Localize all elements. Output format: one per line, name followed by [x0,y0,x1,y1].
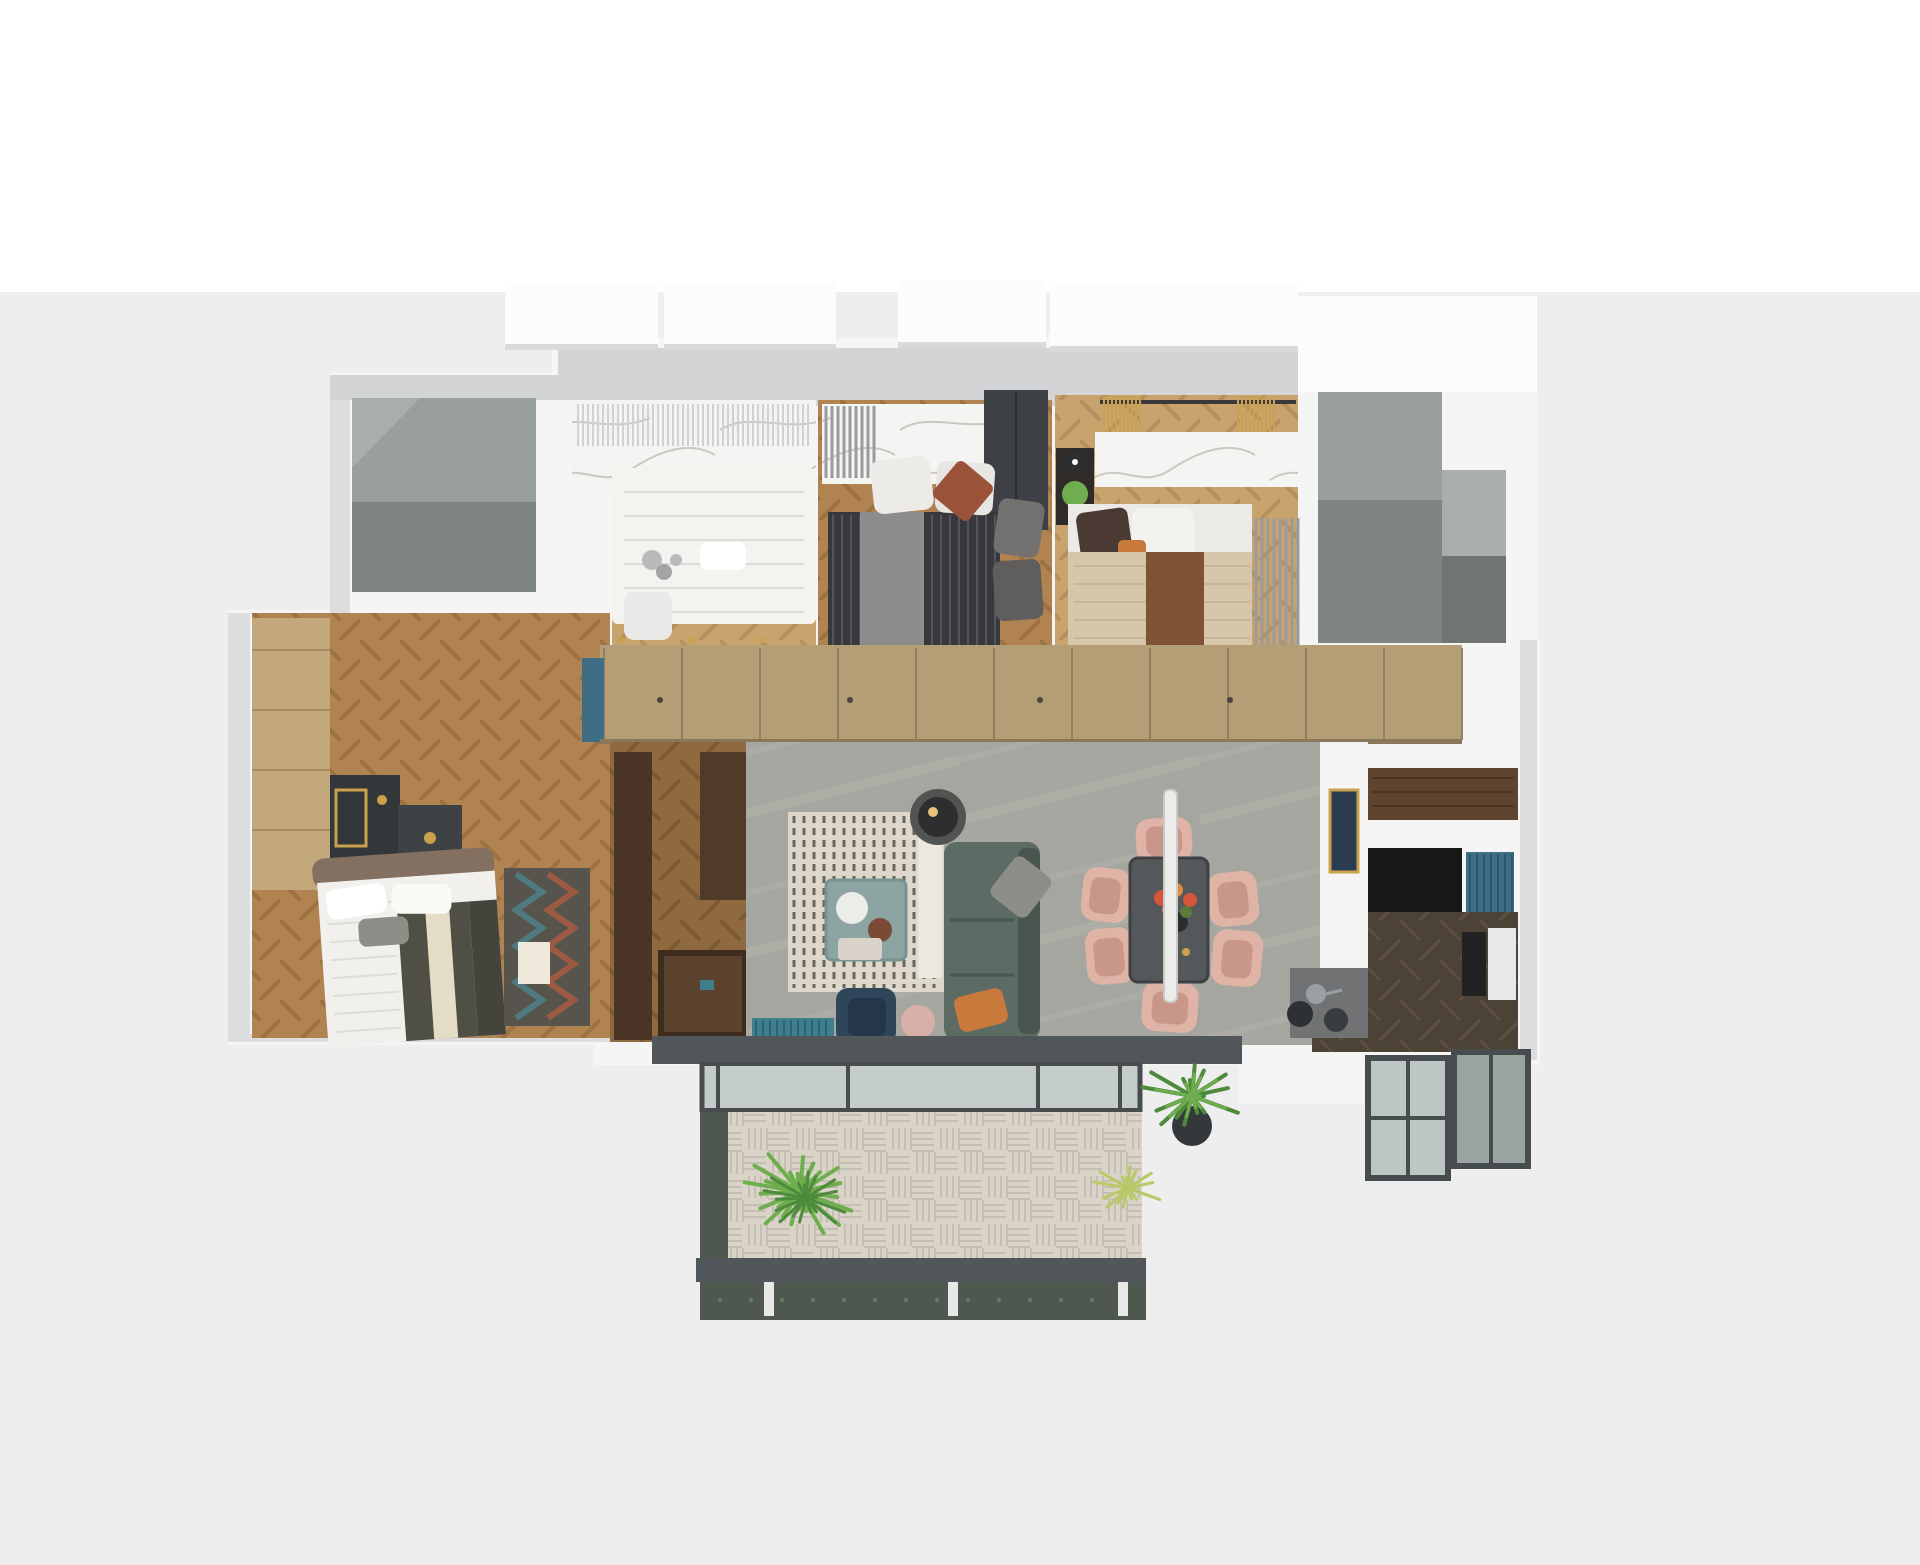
console-decor [700,980,714,990]
kids-sheer-curtain [578,404,808,446]
rug-plain-edge [918,830,942,978]
bedroom-middle [818,390,1052,648]
master-pillow-2 [391,884,451,914]
pan-2 [1324,1008,1348,1032]
floor-lamp [918,797,958,837]
master-wardrobe-column [252,618,330,890]
glass-sliding-doors [700,1064,1142,1112]
kitchen-stool [1287,1001,1313,1027]
hallway-closet [582,645,1462,744]
sliding-door-header [652,1036,1242,1064]
linear-pendant-lamp [1164,790,1177,1002]
dining-chair [1079,866,1132,925]
wood-countertop [1368,768,1518,820]
wood-pillar-2 [700,752,746,900]
teal-hall-cabinet [582,658,604,742]
fridge [1488,928,1516,1000]
entrance [610,742,748,1042]
bedroom3-brown-runner [1146,552,1204,652]
coffee-table-tray [836,892,868,924]
bedroom2-curtain [826,406,874,478]
wood-pillar-1 [614,752,652,1040]
kitchen [1287,742,1518,1060]
roof-slab-3 [898,280,1046,342]
teal-cabinet-slats [1470,854,1512,914]
black-cabinets [1368,848,1462,912]
roof-slab-4 [1050,282,1298,346]
green-sofa [944,842,1055,1040]
vanity-decor [377,795,387,805]
bedroom2-pillow-white-1 [869,455,934,515]
pan-1 [1306,984,1326,1004]
dining-chair [1210,928,1265,988]
kids-chair [624,592,672,640]
void-tl-north-band [330,375,558,400]
floor-plan-stage [0,0,1920,1565]
bedroom2-pillow-gray-1 [992,497,1045,559]
master-bedroom [252,613,610,1047]
blush-ottoman [901,1005,935,1039]
roof-slab-1 [505,282,658,344]
floor-plan-render [0,0,1920,1565]
void-room-top-left [352,398,536,592]
bedroom-right [1055,395,1298,652]
closet-doors [600,645,1462,742]
kids-pillow [700,542,746,570]
bedroom2-gray-throw [860,512,924,648]
master-bed [311,847,506,1047]
bedroom2-pillow-gray-2 [992,558,1044,621]
kids-room [558,400,816,645]
master-pillow-accent [358,916,410,947]
potted-plant-small [1062,481,1088,507]
small-balcony-right [1368,1052,1528,1178]
oven [1462,932,1486,996]
navy-chair-seat [848,998,886,1036]
console-top [664,956,742,1032]
background-top-band [0,0,1920,292]
roof-slab-2 [664,282,836,344]
rug-tray [518,942,550,984]
dining-chair [1084,926,1137,986]
roof-slab-5 [1298,296,1537,392]
glazed-frame-1 [1368,1058,1448,1178]
coffee-table-cloth [838,938,882,960]
dining-chair [1205,869,1260,928]
balcony-parapet [696,1258,1146,1282]
navy-art-panel [1330,790,1358,872]
nightstand-decor [424,832,436,844]
lamp-glow [928,807,938,817]
glazed-frame-2 [1454,1052,1528,1166]
bedroom3-marble-ledge [1095,432,1298,487]
